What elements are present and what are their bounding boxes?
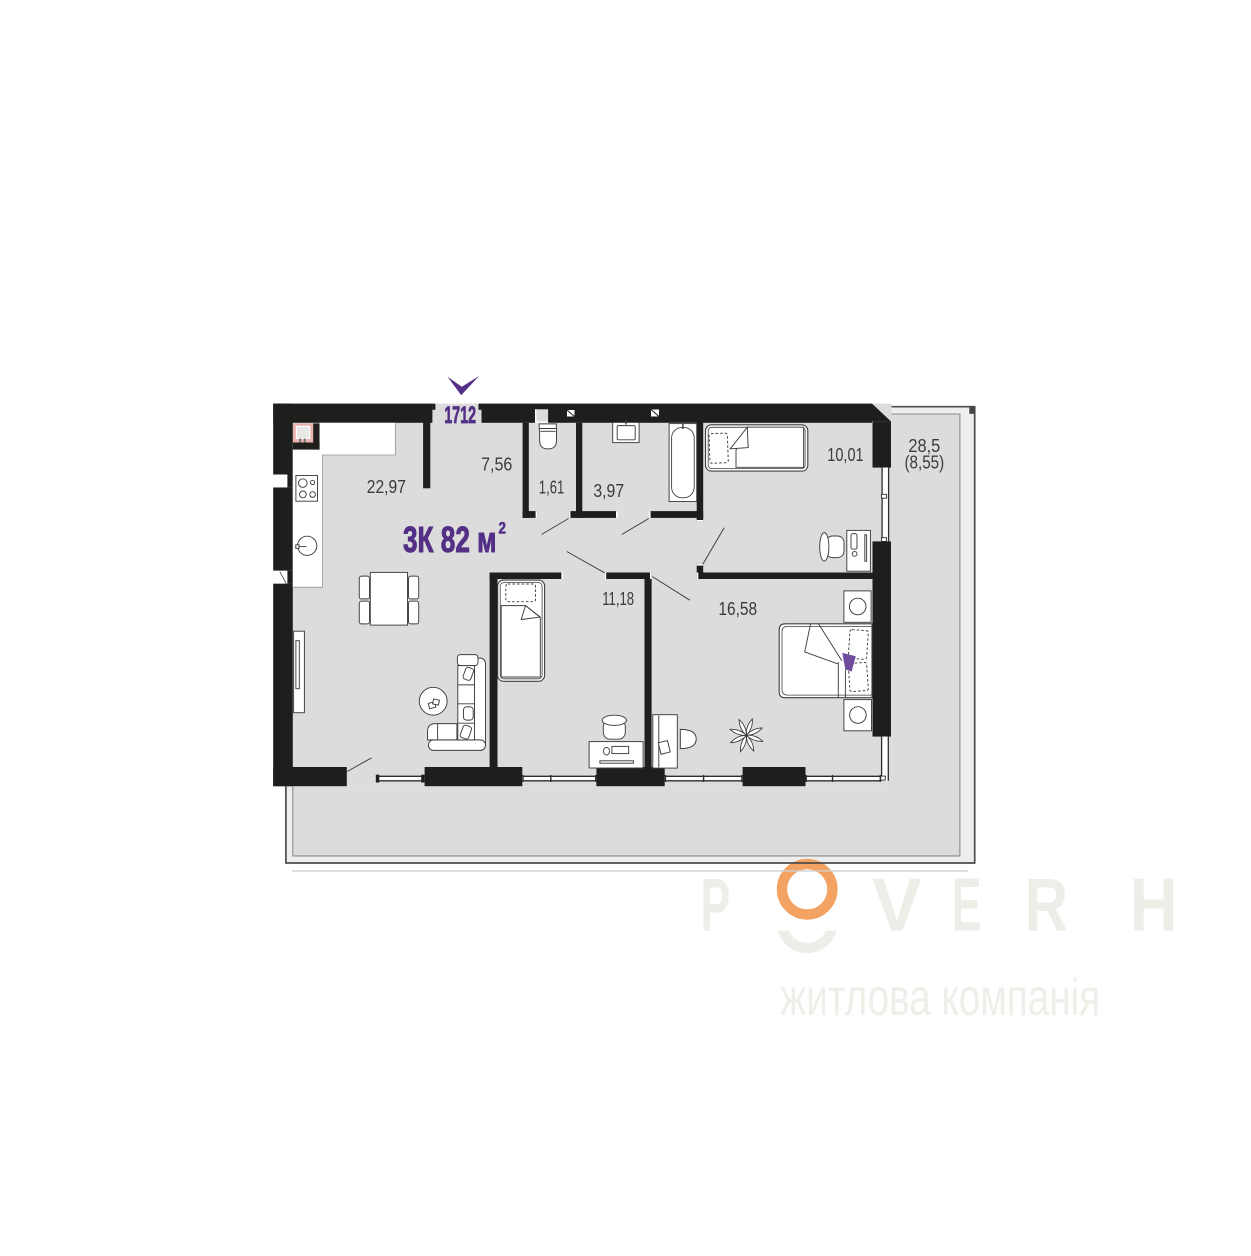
svg-text:1,61: 1,61 [539,477,565,498]
svg-text:1712: 1712 [444,402,476,429]
svg-text:22,97: 22,97 [367,476,406,497]
svg-text:житлова компанія: житлова компанія [780,969,1100,1027]
svg-text:H: H [1130,862,1178,946]
svg-text:V: V [872,862,922,946]
svg-text:7,56: 7,56 [481,453,512,474]
svg-text:16,58: 16,58 [718,598,757,619]
svg-text:2: 2 [499,519,507,538]
svg-text:(8,55): (8,55) [905,452,945,473]
svg-text:10,01: 10,01 [827,444,863,465]
svg-text:3,97: 3,97 [593,480,624,501]
svg-text:P: P [701,862,731,946]
svg-text:11,18: 11,18 [602,588,634,609]
svg-text:3К 82 м: 3К 82 м [403,519,497,560]
svg-text:R: R [1025,862,1068,946]
svg-text:E: E [952,862,982,946]
